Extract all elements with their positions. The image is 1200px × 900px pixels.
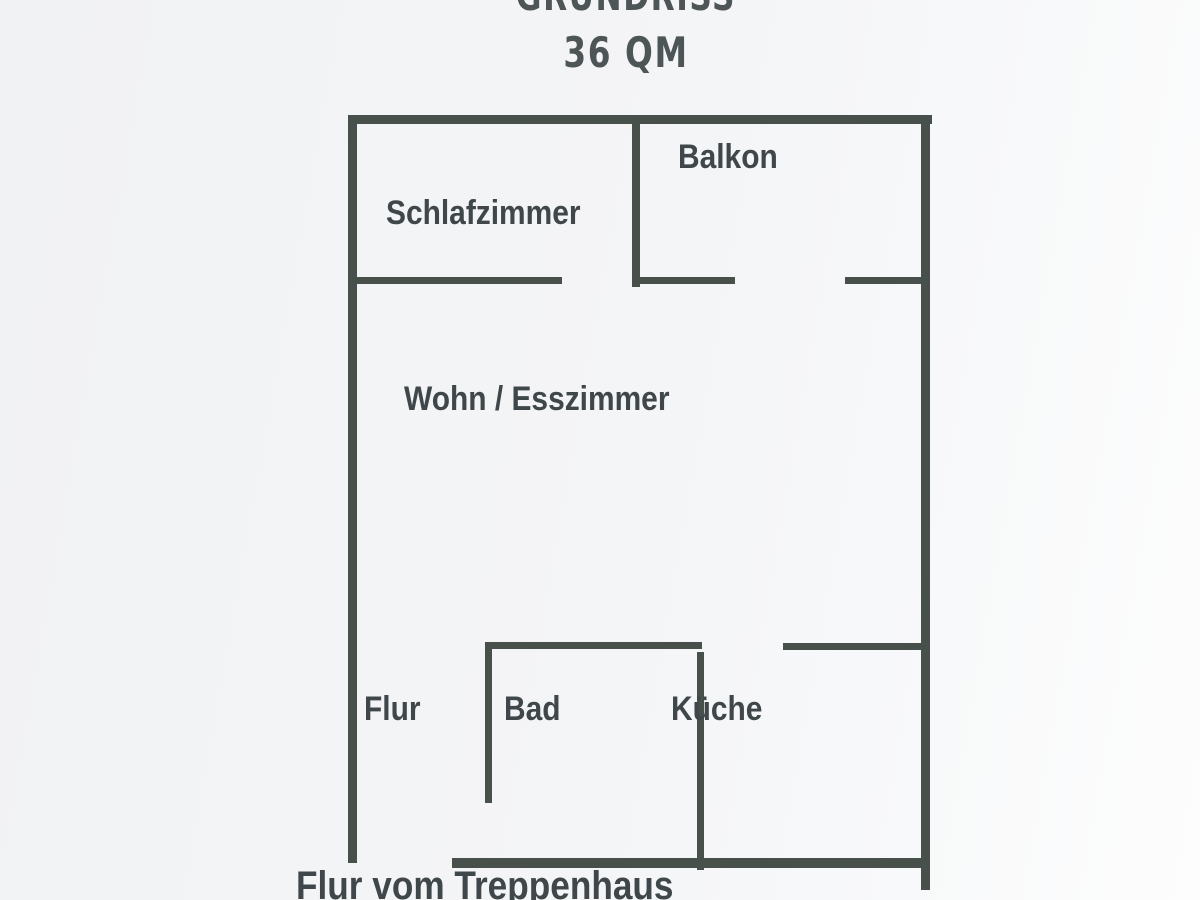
schlafzimmer-south-wall [348, 277, 562, 284]
balkon-divider-wall [632, 118, 640, 287]
balkon-south-wall-left [632, 277, 735, 284]
exterior-top-wall [348, 115, 932, 124]
floorplan-walls [0, 0, 1200, 900]
room-label-bad: Bad [504, 692, 561, 726]
room-label-flur: Flur [364, 692, 421, 726]
balkon-south-wall-right [845, 277, 930, 284]
exterior-left-wall [348, 115, 357, 863]
bad-north-wall [485, 642, 702, 649]
kueche-north-wall [783, 643, 921, 650]
room-label-balkon: Balkon [678, 140, 778, 174]
room-label-flur-vom-treppenhaus: Flur vom Treppenhaus [296, 866, 673, 900]
exterior-right-wall [921, 117, 930, 890]
bad-west-wall [485, 642, 492, 803]
room-label-kueche: Küche [671, 692, 762, 726]
bad-east-wall [697, 652, 704, 870]
room-label-schlafzimmer: Schlafzimmer [386, 196, 581, 230]
floorplan-scan-page: GRUNDRISS 36 QM Balkon Schlafzimmer Wohn… [0, 0, 1200, 900]
room-label-wohn-esszimmer: Wohn / Esszimmer [404, 382, 669, 416]
